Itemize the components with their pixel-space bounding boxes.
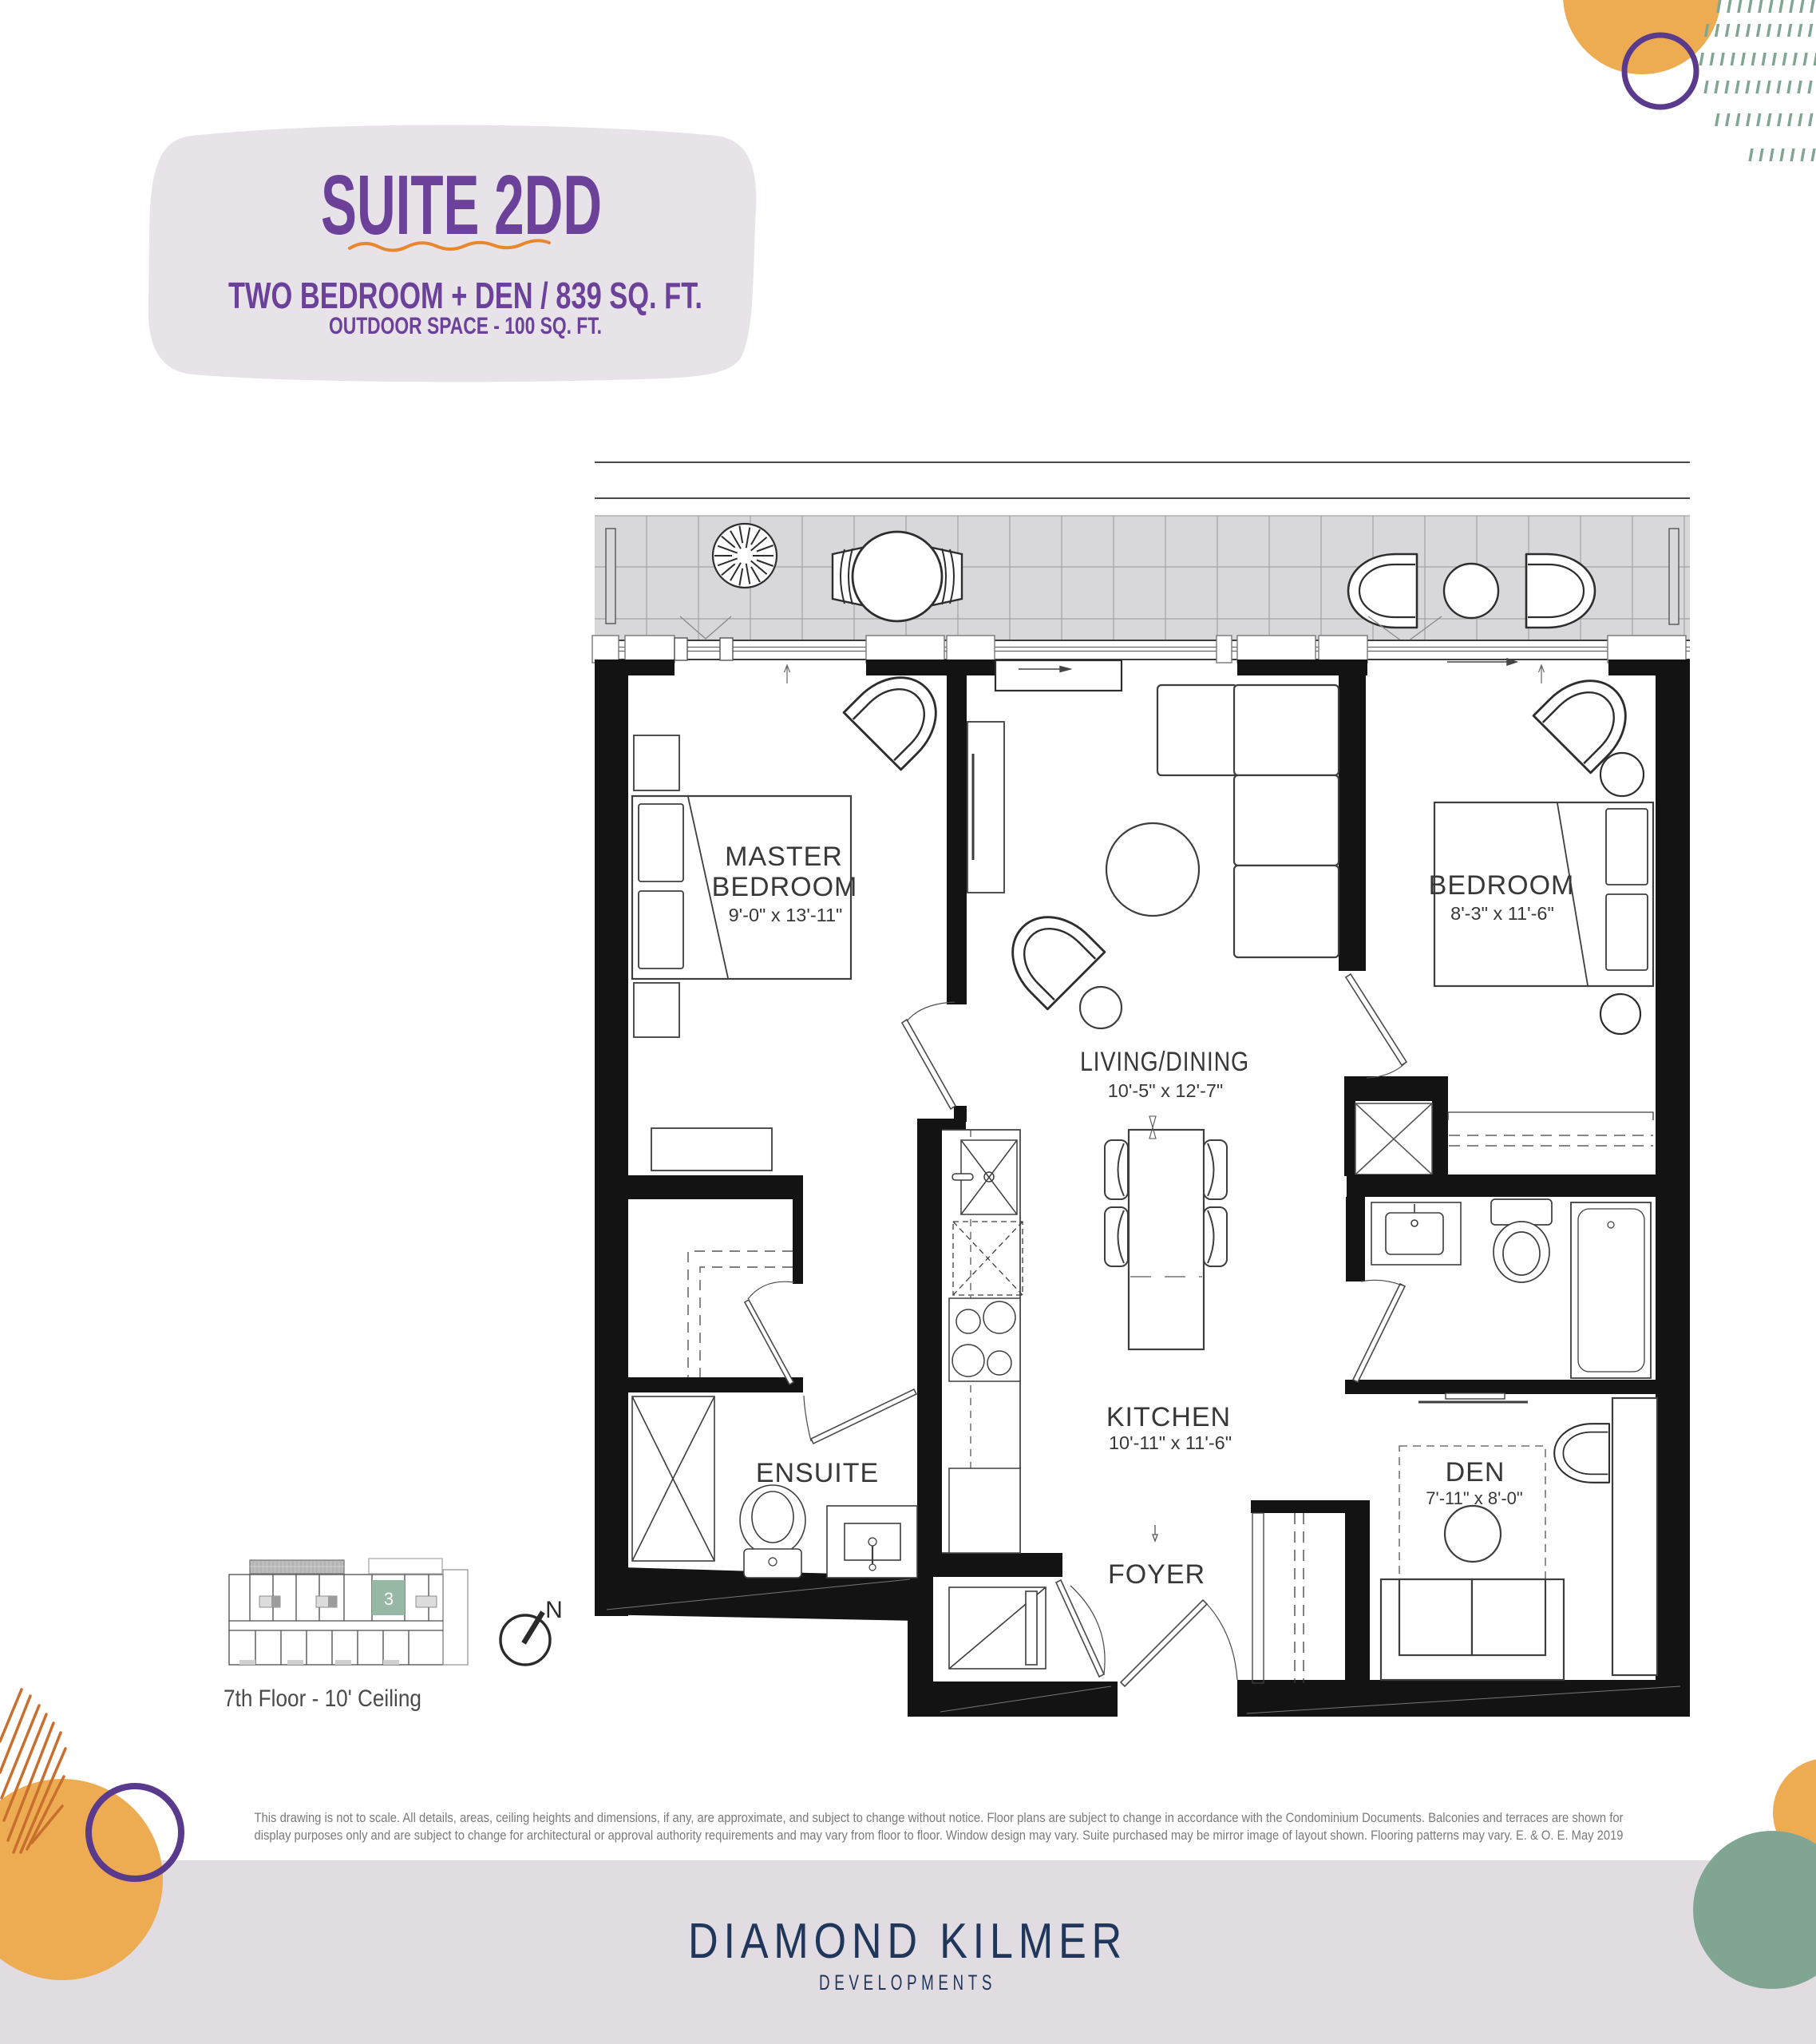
svg-text:10'-5" x 12'-7": 10'-5" x 12'-7" — [1108, 1080, 1224, 1101]
svg-text:DEVELOPMENTS: DEVELOPMENTS — [819, 1971, 996, 1994]
svg-text:10'-11" x 11'-6": 10'-11" x 11'-6" — [1109, 1432, 1232, 1453]
svg-text:BEDROOM: BEDROOM — [712, 872, 858, 902]
svg-text:9'-0" x 13'-11": 9'-0" x 13'-11" — [729, 905, 843, 925]
svg-text:8'-3" x 11'-6": 8'-3" x 11'-6" — [1450, 903, 1554, 924]
svg-text:N: N — [545, 1597, 563, 1623]
svg-text:FOYER: FOYER — [1108, 1559, 1205, 1590]
svg-text:ENSUITE: ENSUITE — [756, 1458, 879, 1488]
svg-text:DEN: DEN — [1446, 1457, 1505, 1487]
svg-text:LIVING/DINING: LIVING/DINING — [1080, 1047, 1249, 1077]
svg-text:7th Floor - 10' Ceiling: 7th Floor - 10' Ceiling — [224, 1686, 421, 1712]
svg-text:KITCHEN: KITCHEN — [1106, 1402, 1231, 1432]
svg-text:SUITE 2DD: SUITE 2DD — [321, 158, 602, 252]
svg-text:This drawing is not to scale.: This drawing is not to scale. All detail… — [255, 1810, 1624, 1825]
svg-text:DIAMOND KILMER: DIAMOND KILMER — [688, 1914, 1127, 1969]
svg-text:OUTDOOR SPACE - 100 SQ. FT.: OUTDOOR SPACE - 100 SQ. FT. — [329, 313, 602, 339]
svg-text:TWO BEDROOM + DEN / 839 SQ. FT: TWO BEDROOM + DEN / 839 SQ. FT. — [228, 275, 702, 316]
svg-text:MASTER: MASTER — [725, 842, 843, 872]
svg-text:3: 3 — [384, 1589, 394, 1609]
svg-text:BEDROOM: BEDROOM — [1429, 870, 1575, 901]
svg-text:display purposes only and are: display purposes only and are subject to… — [255, 1828, 1624, 1843]
